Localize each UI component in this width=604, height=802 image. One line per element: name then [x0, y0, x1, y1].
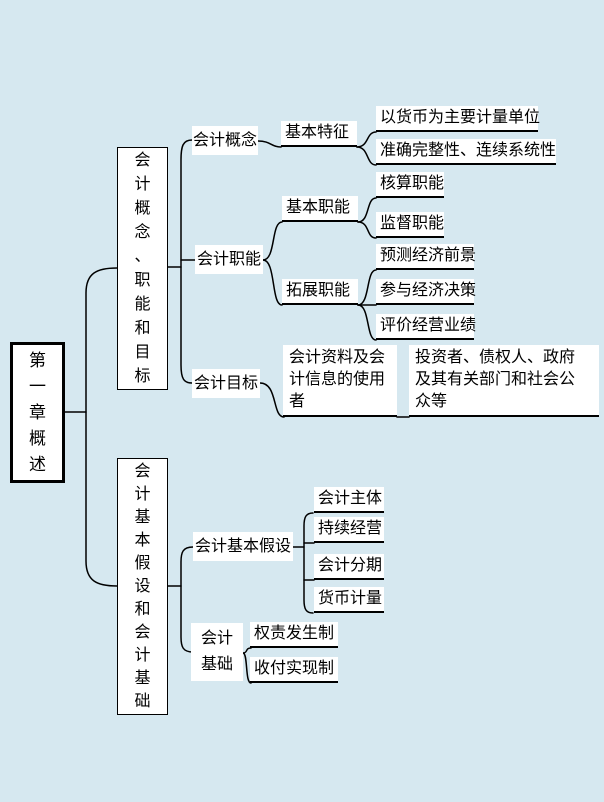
leaf-accrual-basis: 权责发生制: [250, 622, 338, 648]
root-node-chapter-overview: 第一章概述: [10, 342, 65, 483]
leaf-checking-function: 核算职能: [376, 172, 444, 198]
leaf-cash-basis: 收付实现制: [250, 657, 338, 683]
leaf-evaluate-performance: 评价经营业绩: [376, 314, 474, 340]
branch-concept-function-goal: 会计概念、职能和目标: [117, 147, 168, 390]
node-info-users-line1: 会计资料及会: [289, 347, 393, 369]
leaf-accounting-period: 会计分期: [314, 554, 384, 580]
node-basic-characteristics: 基本特征: [281, 121, 357, 147]
leaf-investors-creditors-government: 投资者、债权人、政府 及其有关部门和社会公 众等: [409, 345, 599, 417]
node-info-users-line2: 计信息的使用: [289, 369, 393, 391]
node-accounting-basis-line2: 基础: [191, 652, 243, 678]
branch-assumptions-basis: 会计基本假设和会计基础: [117, 458, 168, 715]
leaf-monetary-measurement: 货币计量: [314, 587, 384, 613]
leaf-investors-line1: 投资者、债权人、政府: [415, 347, 595, 369]
mindmap-canvas: 第一章概述 会计概念、职能和目标 会计基本假设和会计基础 会计概念 会计职能 会…: [0, 0, 604, 802]
leaf-accurate-complete-continuous: 准确完整性、连续系统性: [376, 139, 556, 165]
node-accounting-function: 会计职能: [195, 245, 263, 274]
leaf-going-concern: 持续经营: [314, 517, 384, 543]
leaf-participate-decisions: 参与经济决策: [376, 279, 474, 305]
leaf-currency-main-measure: 以货币为主要计量单位: [376, 106, 538, 132]
leaf-investors-line2: 及其有关部门和社会公: [415, 369, 595, 391]
leaf-predict-economy: 预测经济前景: [376, 244, 474, 270]
node-extended-functions: 拓展职能: [282, 279, 358, 305]
leaf-investors-line3: 众等: [415, 391, 595, 413]
node-accounting-basis: 会计 基础: [191, 623, 243, 681]
leaf-supervision-function: 监督职能: [376, 212, 444, 238]
node-accounting-concept: 会计概念: [192, 126, 258, 155]
node-accounting-basis-line1: 会计: [191, 626, 243, 652]
node-basic-functions: 基本职能: [282, 196, 358, 222]
node-basic-assumptions: 会计基本假设: [193, 532, 293, 561]
node-info-users-line3: 者: [289, 391, 393, 413]
node-accounting-goal: 会计目标: [192, 369, 260, 398]
node-info-users: 会计资料及会 计信息的使用 者: [283, 345, 397, 417]
leaf-accounting-entity: 会计主体: [314, 487, 384, 513]
